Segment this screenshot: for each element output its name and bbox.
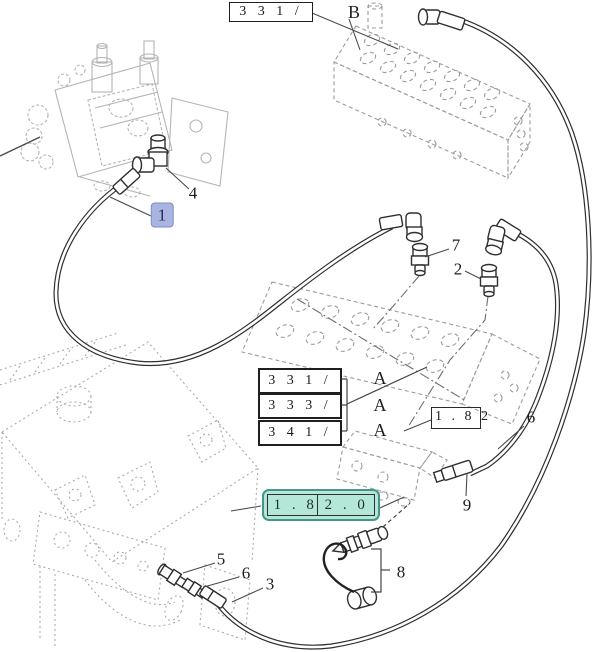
callout-6-lower[interactable]: 6 <box>242 565 251 582</box>
view-letter-b: B <box>348 3 360 21</box>
pump-leader-line <box>0 137 40 156</box>
valve-bank-b-ghost <box>334 3 530 178</box>
hose-3-ferrule <box>199 585 227 608</box>
elbow-fitting-4 <box>133 135 169 173</box>
hose-3-path <box>212 20 589 647</box>
callout-9[interactable]: 9 <box>463 497 472 514</box>
callout-6-upper[interactable]: 6 <box>527 409 536 426</box>
callout-3[interactable]: 3 <box>266 576 275 593</box>
view-letter-a2: A <box>374 396 387 414</box>
ref-box-1820-text: 1 . 8 2 . 0 <box>274 497 369 514</box>
callout-4[interactable]: 4 <box>189 185 198 202</box>
callout-2[interactable]: 2 <box>454 261 463 278</box>
ref-box-1820-highlighted[interactable]: 1 . 8 2 . 0 <box>262 489 380 521</box>
pump-assembly-ghost <box>21 41 228 197</box>
callout-1-selected[interactable]: 1 <box>151 203 174 228</box>
adapter-fitting-7 <box>412 244 429 276</box>
hose-1-ferrule-top <box>112 168 140 195</box>
view-letter-a3: A <box>374 421 387 439</box>
parts-diagram-canvas: 3 3 1 / 3 3 1 / 3 3 3 / 3 4 1 / 1 . 8 2 … <box>0 0 611 652</box>
hose-1-end-elbow <box>379 213 422 242</box>
callout-5[interactable]: 5 <box>217 551 226 568</box>
ref-box-182[interactable]: 1 . 8 2 <box>435 409 491 425</box>
ref-box-331-top[interactable]: 3 3 1 / <box>229 2 313 22</box>
callout-8[interactable]: 8 <box>397 564 406 581</box>
adapter-fitting-2 <box>481 265 498 297</box>
diagram-linework <box>0 0 611 652</box>
callout-7[interactable]: 7 <box>452 237 461 254</box>
ref-box-1820-divider <box>317 494 318 516</box>
view-letter-a1: A <box>374 369 387 387</box>
hose-9-end-elbow <box>484 219 521 257</box>
ref-box-331[interactable]: 3 3 1 / <box>258 368 342 394</box>
hose-3-top-elbow <box>419 9 466 30</box>
ref-box-341[interactable]: 3 4 1 / <box>258 420 342 446</box>
ref-box-333[interactable]: 3 3 3 / <box>258 393 342 419</box>
